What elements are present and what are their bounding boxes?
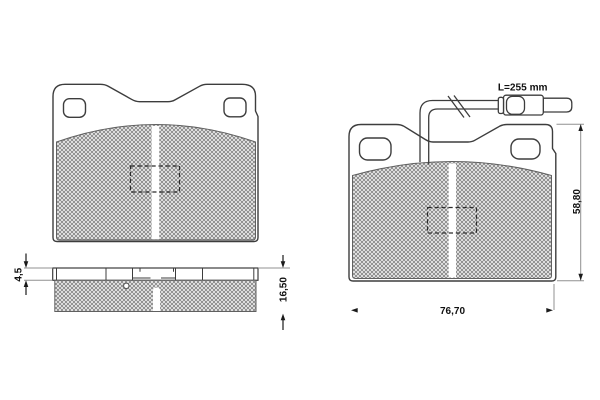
svg-text:16,50: 16,50 [278,277,289,302]
svg-text:76,70: 76,70 [440,306,465,317]
svg-text:L=255 mm: L=255 mm [498,82,548,93]
svg-text:4,5: 4,5 [13,267,24,281]
svg-text:58,80: 58,80 [572,189,583,214]
